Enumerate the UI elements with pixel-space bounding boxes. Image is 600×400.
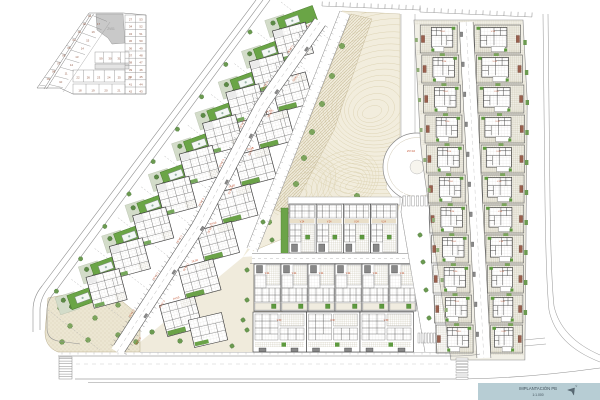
svg-text:V.24: V.24: [381, 222, 386, 224]
svg-text:21: 21: [117, 89, 121, 93]
svg-text:V.24: V.24: [319, 273, 324, 275]
svg-text:ZV01: ZV01: [107, 27, 115, 31]
svg-text:16: 16: [91, 30, 95, 34]
svg-text:04: 04: [72, 38, 76, 42]
svg-text:05: 05: [67, 46, 71, 50]
svg-text:13: 13: [75, 55, 79, 59]
svg-text:27: 27: [129, 18, 133, 22]
svg-text:46: 46: [139, 68, 143, 72]
svg-text:V.30: V.30: [384, 320, 389, 322]
svg-text:36: 36: [129, 46, 133, 50]
svg-text:V.24: V.24: [373, 273, 378, 275]
svg-text:19: 19: [91, 89, 95, 93]
svg-text:V.24: V.24: [499, 241, 504, 243]
svg-text:11: 11: [65, 72, 68, 76]
svg-text:1:1.000: 1:1.000: [532, 393, 543, 397]
svg-text:15: 15: [86, 38, 90, 42]
svg-text:24,50: 24,50: [172, 295, 180, 301]
svg-text:47: 47: [139, 61, 143, 65]
svg-text:34: 34: [129, 32, 133, 36]
svg-text:22: 22: [76, 76, 80, 80]
svg-text:36: 36: [129, 39, 133, 43]
svg-text:24: 24: [107, 76, 111, 80]
svg-text:V.24: V.24: [300, 222, 305, 224]
svg-text:25: 25: [118, 76, 122, 80]
svg-text:42: 42: [129, 90, 133, 94]
svg-text:V.24: V.24: [346, 273, 351, 275]
svg-text:43: 43: [139, 90, 143, 94]
svg-text:V.24: V.24: [292, 273, 297, 275]
svg-text:01: 01: [88, 14, 92, 18]
svg-text:23: 23: [97, 76, 101, 80]
svg-text:V.24: V.24: [498, 211, 503, 213]
svg-text:22: 22: [128, 76, 132, 80]
svg-text:49: 49: [139, 46, 143, 50]
svg-text:V.30: V.30: [277, 320, 282, 322]
svg-text:24,50: 24,50: [191, 258, 199, 264]
svg-text:48: 48: [139, 54, 143, 58]
svg-text:ZV 02: ZV 02: [407, 149, 415, 153]
svg-text:44: 44: [139, 82, 143, 86]
svg-text:51: 51: [139, 32, 143, 36]
svg-text:34: 34: [129, 25, 133, 29]
svg-text:31: 31: [117, 57, 121, 61]
svg-text:V.30: V.30: [330, 320, 335, 322]
svg-text:30: 30: [108, 57, 112, 61]
svg-text:12: 12: [70, 63, 74, 67]
svg-text:V.24: V.24: [327, 222, 332, 224]
svg-text:14: 14: [81, 47, 85, 51]
svg-text:06: 06: [62, 54, 66, 58]
svg-text:52: 52: [139, 25, 143, 29]
svg-text:V.24: V.24: [400, 273, 405, 275]
svg-text:V.24: V.24: [265, 273, 270, 275]
svg-text:26: 26: [87, 76, 91, 80]
svg-text:V.24: V.24: [354, 222, 359, 224]
svg-text:37: 37: [129, 54, 133, 58]
svg-text:02: 02: [83, 22, 87, 26]
svg-text:39: 39: [129, 68, 133, 72]
svg-text:59: 59: [99, 57, 103, 61]
svg-text:V.24: V.24: [501, 331, 506, 333]
svg-text:IMPLANTACIÓN PB: IMPLANTACIÓN PB: [519, 386, 557, 391]
svg-text:18: 18: [78, 89, 82, 93]
svg-text:53: 53: [139, 18, 143, 22]
svg-text:08: 08: [52, 69, 56, 73]
svg-text:20: 20: [104, 89, 108, 93]
svg-text:38: 38: [129, 61, 133, 65]
svg-text:50: 50: [139, 39, 143, 43]
svg-text:V.24: V.24: [496, 151, 501, 153]
svg-text:45: 45: [139, 75, 143, 79]
svg-text:V.24: V.24: [500, 301, 505, 303]
svg-text:41: 41: [129, 82, 133, 86]
svg-text:03: 03: [78, 30, 82, 34]
svg-text:07: 07: [57, 62, 61, 66]
svg-text:17: 17: [97, 22, 101, 26]
svg-text:09: 09: [47, 77, 51, 81]
svg-text:10: 10: [59, 80, 63, 84]
svg-text:V.24: V.24: [500, 271, 505, 273]
